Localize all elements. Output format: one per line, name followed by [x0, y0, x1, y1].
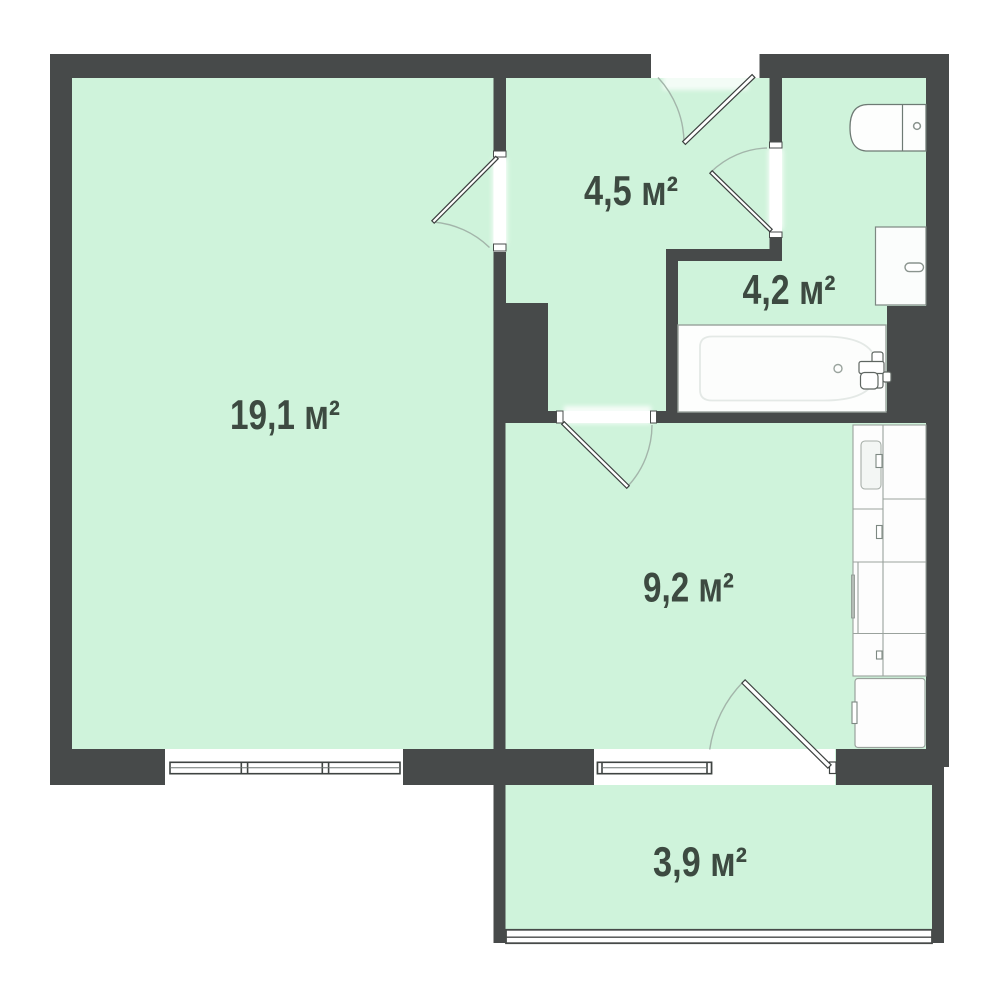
svg-text:4,2 м²: 4,2 м²	[743, 266, 836, 313]
svg-text:3,9 м²: 3,9 м²	[653, 838, 747, 885]
svg-text:4,5 м²: 4,5 м²	[584, 167, 678, 214]
svg-text:19,1 м²: 19,1 м²	[230, 391, 340, 438]
svg-text:9,2 м²: 9,2 м²	[643, 564, 734, 611]
